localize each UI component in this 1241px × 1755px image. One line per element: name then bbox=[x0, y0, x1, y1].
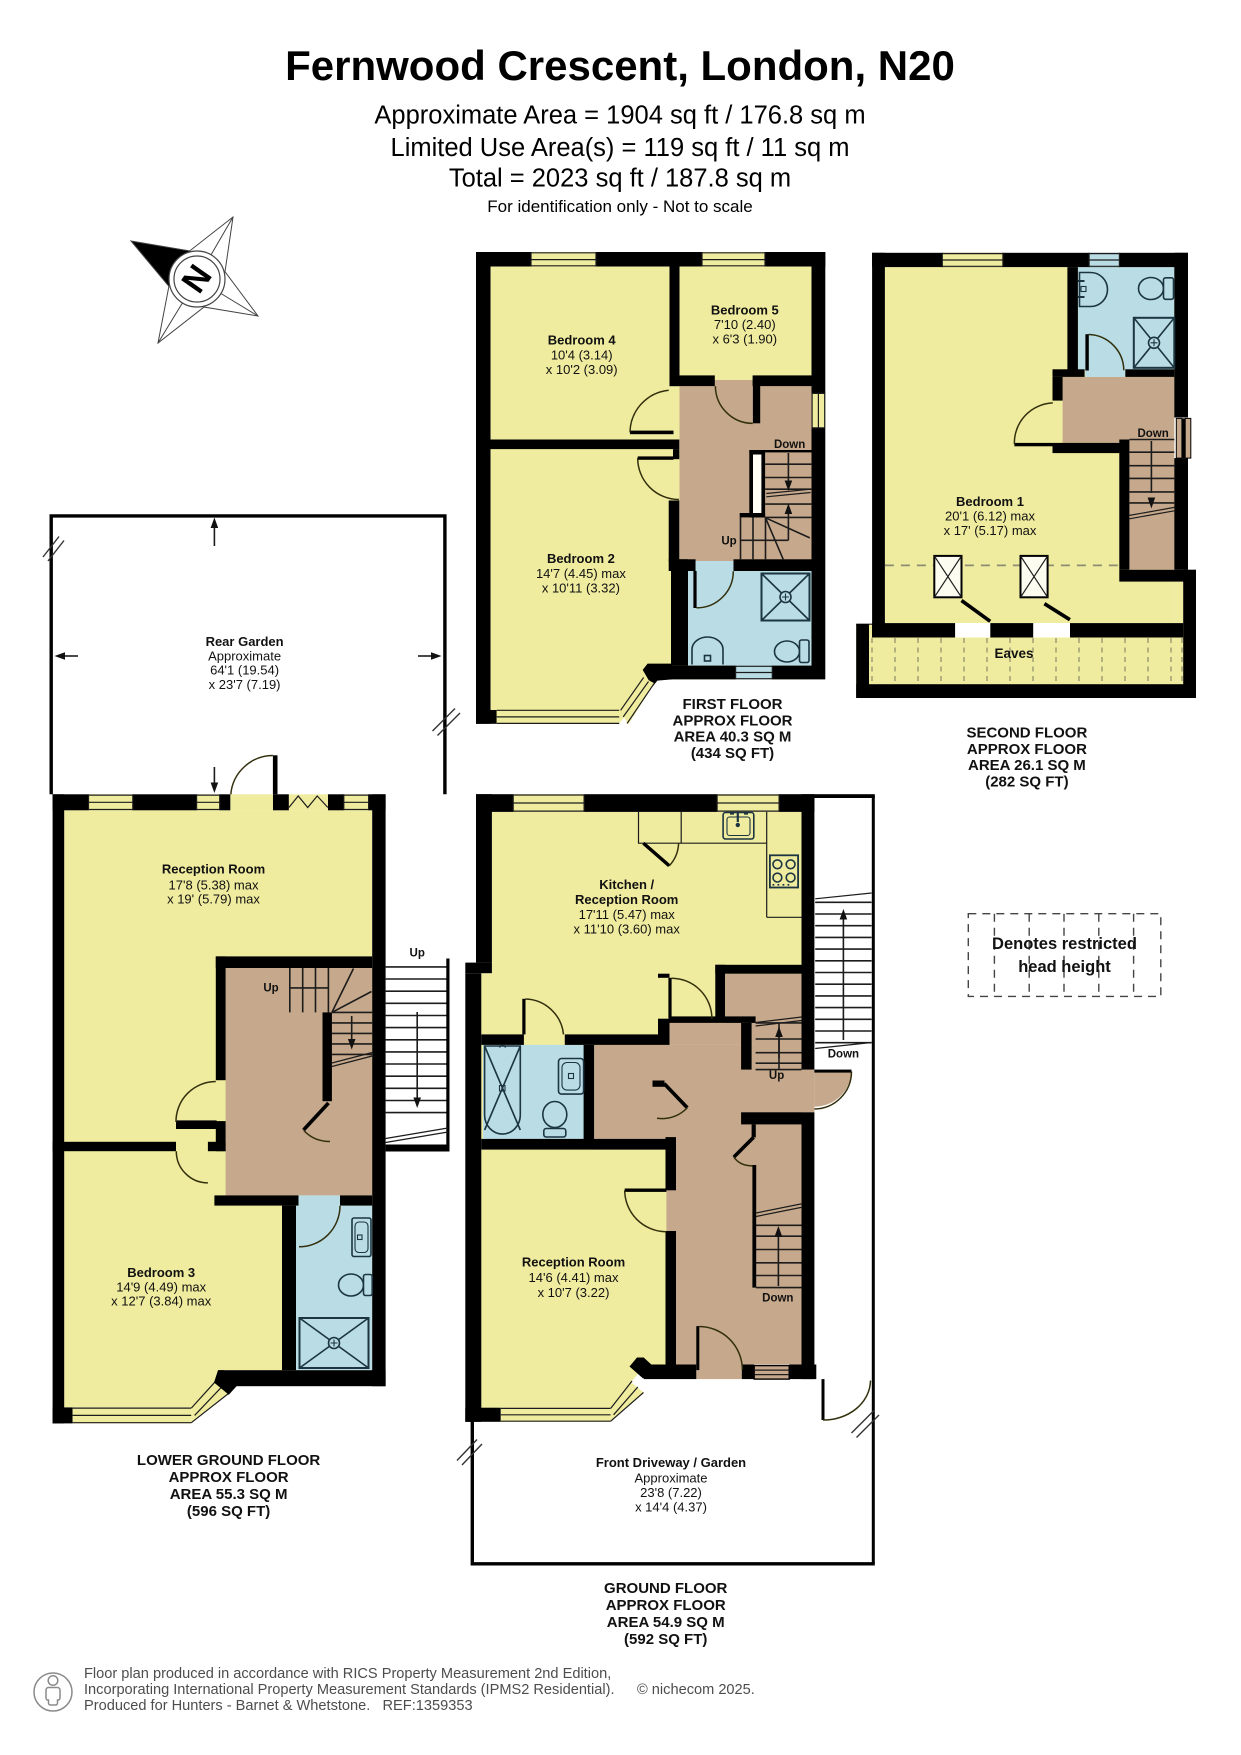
svg-text:LOWER GROUND FLOOR: LOWER GROUND FLOOR bbox=[137, 1452, 320, 1469]
svg-text:20'1 (6.12) max: 20'1 (6.12) max bbox=[945, 509, 1035, 524]
svg-text:Approximate: Approximate bbox=[208, 648, 281, 663]
svg-text:Bedroom 2: Bedroom 2 bbox=[547, 551, 615, 566]
svg-text:Down: Down bbox=[828, 1049, 859, 1061]
svg-text:Up: Up bbox=[769, 1070, 784, 1082]
svg-text:(282 SQ FT): (282 SQ FT) bbox=[985, 774, 1068, 791]
svg-text:Reception Room: Reception Room bbox=[575, 892, 678, 907]
svg-text:Bedroom 5: Bedroom 5 bbox=[711, 303, 779, 318]
svg-text:Bedroom 4: Bedroom 4 bbox=[548, 332, 617, 347]
svg-text:Approximate: Approximate bbox=[635, 1470, 708, 1485]
svg-text:23'8 (7.22): 23'8 (7.22) bbox=[640, 1485, 702, 1500]
svg-text:x 19' (5.79) max: x 19' (5.79) max bbox=[167, 891, 260, 906]
svg-text:Floor plan produced in accorda: Floor plan produced in accordance with R… bbox=[84, 1666, 611, 1682]
svg-text:Produced for Hunters - Barnet: Produced for Hunters - Barnet & Whetston… bbox=[84, 1698, 473, 1714]
svg-text:APPROX FLOOR: APPROX FLOOR bbox=[672, 712, 792, 729]
svg-text:© nichecom 2025.: © nichecom 2025. bbox=[637, 1682, 755, 1698]
svg-text:AREA 54.9 SQ M: AREA 54.9 SQ M bbox=[607, 1614, 725, 1631]
svg-text:Eaves: Eaves bbox=[994, 646, 1033, 661]
svg-text:head height: head height bbox=[1018, 958, 1111, 976]
svg-text:x 10'7 (3.22): x 10'7 (3.22) bbox=[538, 1285, 610, 1300]
svg-text:APPROX FLOOR: APPROX FLOOR bbox=[169, 1469, 289, 1486]
svg-text:Up: Up bbox=[410, 948, 425, 960]
svg-text:7'10 (2.40): 7'10 (2.40) bbox=[714, 317, 776, 332]
svg-text:Front Driveway / Garden: Front Driveway / Garden bbox=[596, 1455, 746, 1470]
svg-text:Total = 2023 sq ft / 187.8 sq: Total = 2023 sq ft / 187.8 sq m bbox=[449, 164, 791, 192]
svg-text:Reception Room: Reception Room bbox=[162, 861, 265, 876]
svg-text:17'8 (5.38) max: 17'8 (5.38) max bbox=[169, 877, 259, 892]
svg-text:(592 SQ FT): (592 SQ FT) bbox=[624, 1631, 707, 1648]
svg-text:Limited Use Area(s) = 119 sq f: Limited Use Area(s) = 119 sq ft / 11 sq … bbox=[391, 134, 850, 162]
svg-text:Fernwood Crescent, London, N20: Fernwood Crescent, London, N20 bbox=[285, 42, 955, 89]
svg-text:Rear Garden: Rear Garden bbox=[206, 634, 284, 649]
svg-text:x 6'3 (1.90): x 6'3 (1.90) bbox=[712, 332, 777, 347]
svg-text:Approximate Area = 1904 sq ft: Approximate Area = 1904 sq ft / 176.8 sq… bbox=[374, 102, 865, 130]
svg-text:Denotes restricted: Denotes restricted bbox=[992, 935, 1137, 953]
svg-text:x 10'11 (3.32): x 10'11 (3.32) bbox=[542, 581, 620, 596]
svg-text:Down: Down bbox=[762, 1293, 793, 1305]
svg-text:APPROX FLOOR: APPROX FLOOR bbox=[606, 1597, 726, 1614]
svg-text:10'4 (3.14): 10'4 (3.14) bbox=[551, 347, 613, 362]
svg-text:Up: Up bbox=[721, 536, 736, 548]
svg-text:Incorporating International Pr: Incorporating International Property Mea… bbox=[84, 1682, 615, 1698]
svg-text:17'11 (5.47) max: 17'11 (5.47) max bbox=[579, 907, 676, 922]
svg-text:x 11'10 (3.60) max: x 11'10 (3.60) max bbox=[574, 922, 681, 937]
svg-text:AREA 40.3 SQ M: AREA 40.3 SQ M bbox=[674, 729, 792, 746]
svg-text:(596 SQ FT): (596 SQ FT) bbox=[187, 1503, 270, 1520]
svg-text:Bedroom 1: Bedroom 1 bbox=[956, 494, 1024, 509]
svg-text:AREA 55.3 SQ M: AREA 55.3 SQ M bbox=[170, 1486, 288, 1503]
svg-text:Reception Room: Reception Room bbox=[522, 1255, 625, 1270]
svg-text:GROUND FLOOR: GROUND FLOOR bbox=[604, 1580, 727, 1597]
svg-text:Up: Up bbox=[263, 983, 278, 995]
svg-text:FIRST FLOOR: FIRST FLOOR bbox=[683, 696, 783, 713]
svg-text:x 12'7 (3.84) max: x 12'7 (3.84) max bbox=[111, 1294, 212, 1309]
svg-text:14'7 (4.45) max: 14'7 (4.45) max bbox=[536, 566, 626, 581]
svg-text:x 17' (5.17) max: x 17' (5.17) max bbox=[944, 523, 1037, 538]
svg-text:Bedroom 3: Bedroom 3 bbox=[127, 1265, 195, 1280]
svg-text:14'6 (4.41) max: 14'6 (4.41) max bbox=[529, 1270, 619, 1285]
svg-text:x 10'2 (3.09): x 10'2 (3.09) bbox=[546, 362, 618, 377]
svg-text:AREA 26.1 SQ M: AREA 26.1 SQ M bbox=[968, 757, 1086, 774]
svg-text:(434 SQ FT): (434 SQ FT) bbox=[691, 745, 774, 762]
svg-text:x 14'4 (4.37): x 14'4 (4.37) bbox=[635, 1500, 707, 1515]
svg-text:14'9 (4.49) max: 14'9 (4.49) max bbox=[116, 1279, 206, 1294]
svg-text:64'1 (19.54): 64'1 (19.54) bbox=[210, 663, 279, 678]
svg-text:Kitchen /: Kitchen / bbox=[599, 877, 654, 892]
svg-text:SECOND FLOOR: SECOND FLOOR bbox=[966, 724, 1087, 741]
svg-text:For identification only - Not: For identification only - Not to scale bbox=[487, 197, 753, 216]
svg-text:Down: Down bbox=[774, 439, 805, 451]
svg-text:APPROX FLOOR: APPROX FLOOR bbox=[967, 741, 1087, 758]
svg-text:Down: Down bbox=[1137, 428, 1168, 440]
svg-text:x 23'7 (7.19): x 23'7 (7.19) bbox=[209, 677, 281, 692]
